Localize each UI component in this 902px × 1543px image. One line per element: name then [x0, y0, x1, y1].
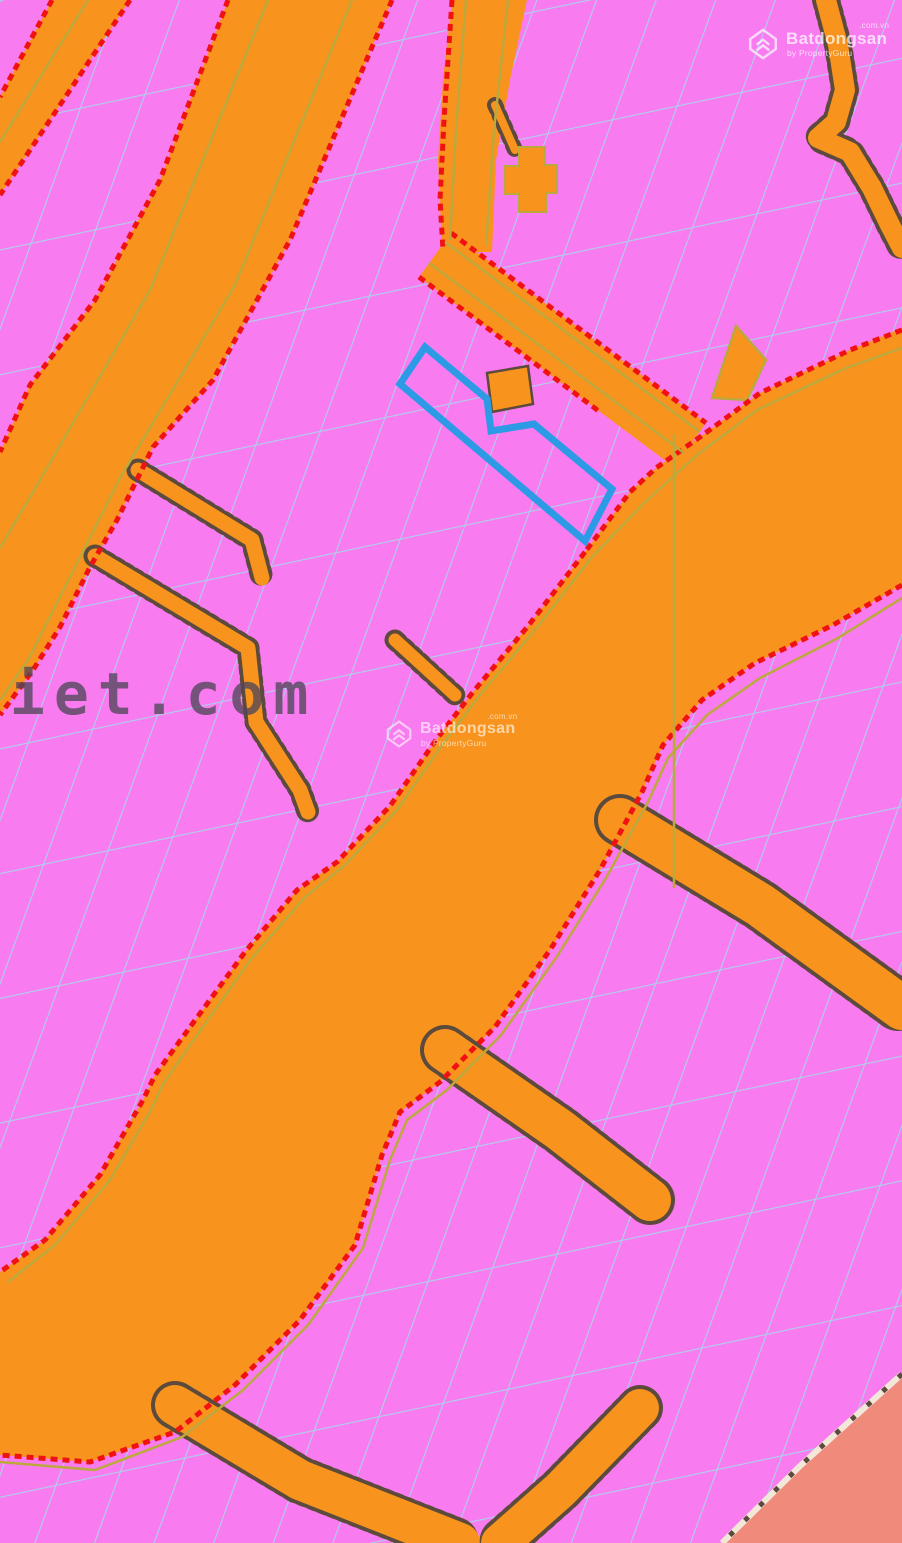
parcel-orange-block	[487, 366, 533, 412]
map-canvas	[0, 0, 902, 1543]
planning-map-screenshot: .com.vn Batdongsan by PropertyGuru .com.…	[0, 0, 902, 1543]
